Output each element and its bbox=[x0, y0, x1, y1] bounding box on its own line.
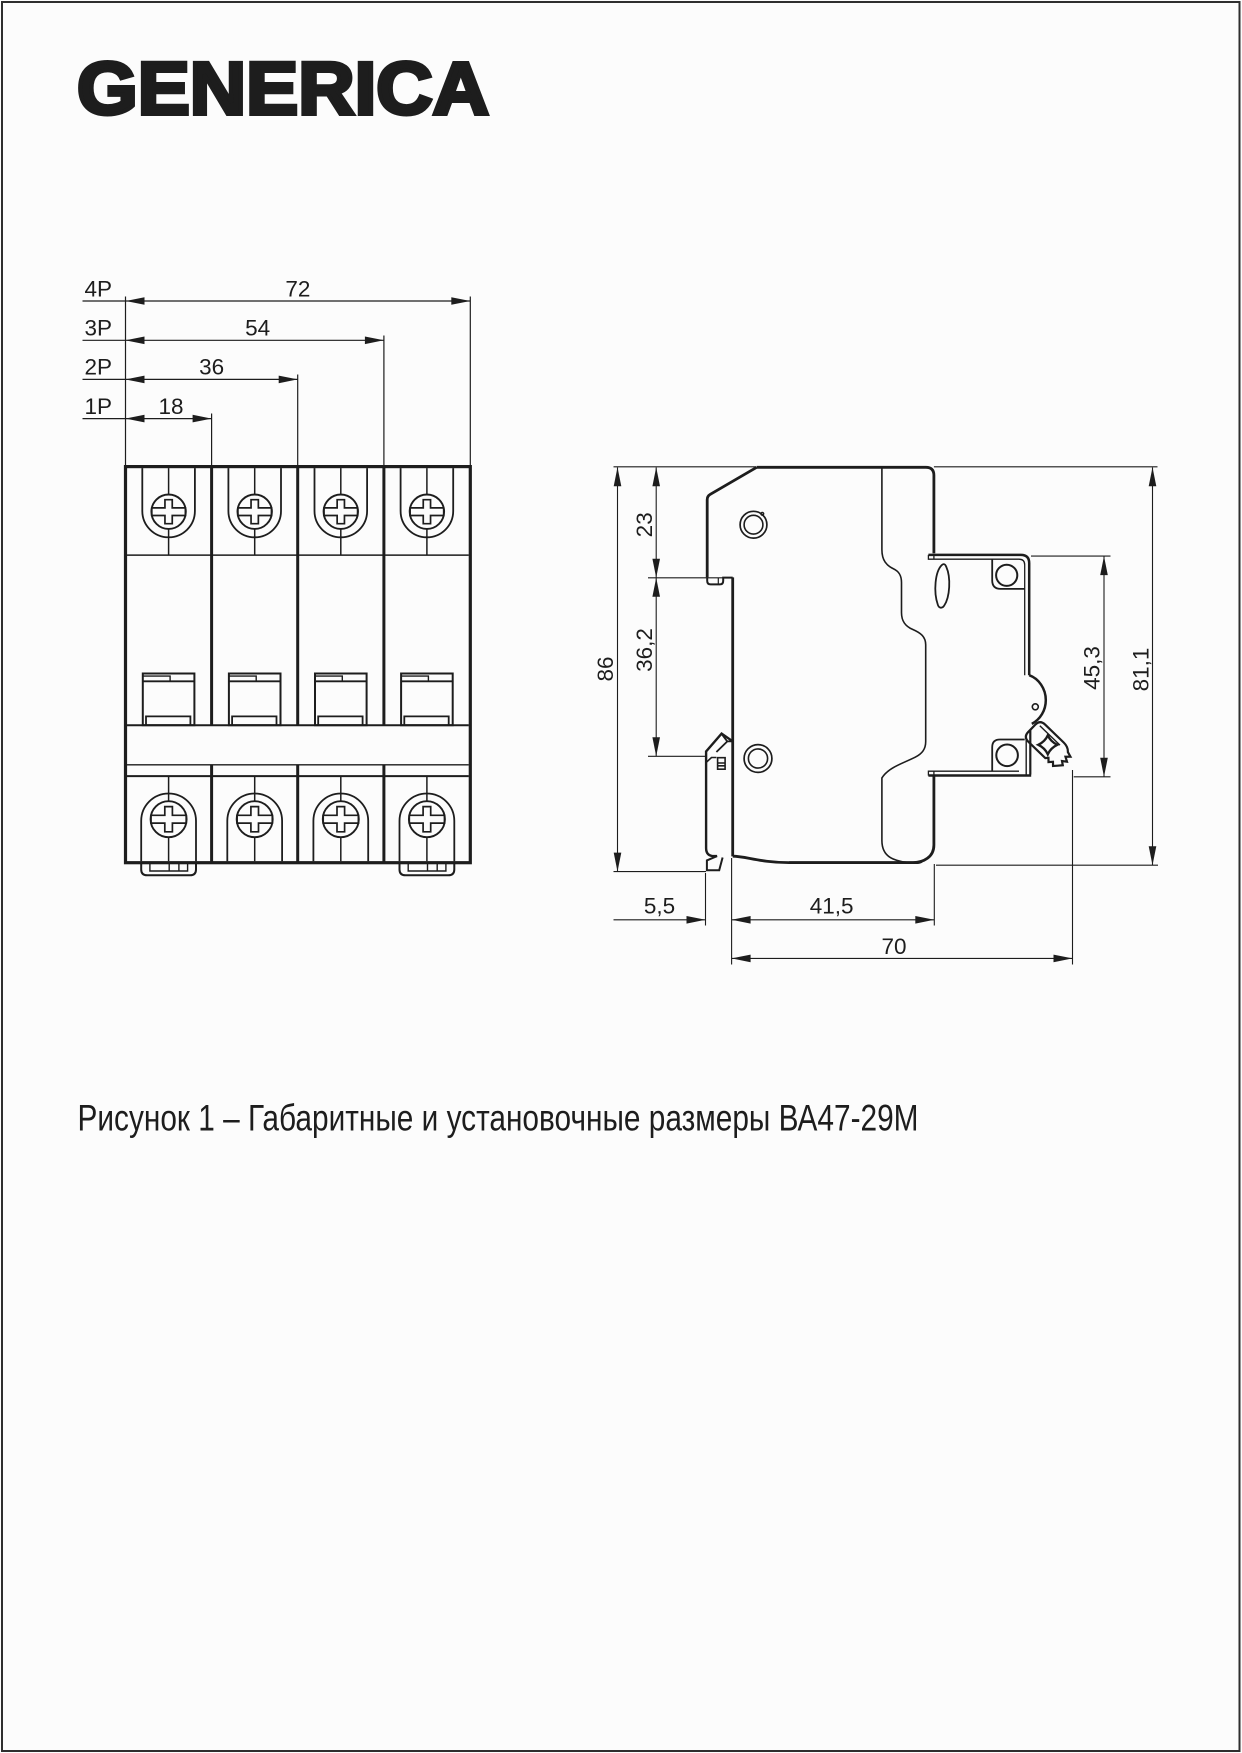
svg-text:81,1: 81,1 bbox=[1129, 648, 1154, 692]
svg-text:Рисунок 1 – Габаритные и устан: Рисунок 1 – Габаритные и установочные ра… bbox=[78, 1097, 919, 1139]
svg-text:23: 23 bbox=[632, 512, 657, 537]
svg-text:18: 18 bbox=[159, 394, 184, 419]
svg-text:45,3: 45,3 bbox=[1080, 646, 1105, 690]
svg-text:2P: 2P bbox=[85, 355, 113, 380]
svg-text:86: 86 bbox=[593, 656, 618, 681]
svg-text:70: 70 bbox=[881, 934, 906, 959]
svg-text:41,5: 41,5 bbox=[810, 894, 854, 919]
svg-text:4P: 4P bbox=[85, 276, 113, 301]
svg-text:36: 36 bbox=[199, 355, 224, 380]
svg-text:72: 72 bbox=[285, 276, 310, 301]
svg-text:36,2: 36,2 bbox=[632, 628, 657, 672]
svg-text:54: 54 bbox=[245, 316, 270, 341]
svg-text:3P: 3P bbox=[85, 316, 113, 341]
svg-text:5,5: 5,5 bbox=[644, 894, 675, 919]
svg-text:GENERICA: GENERICA bbox=[77, 47, 489, 130]
svg-text:1P: 1P bbox=[85, 394, 113, 419]
